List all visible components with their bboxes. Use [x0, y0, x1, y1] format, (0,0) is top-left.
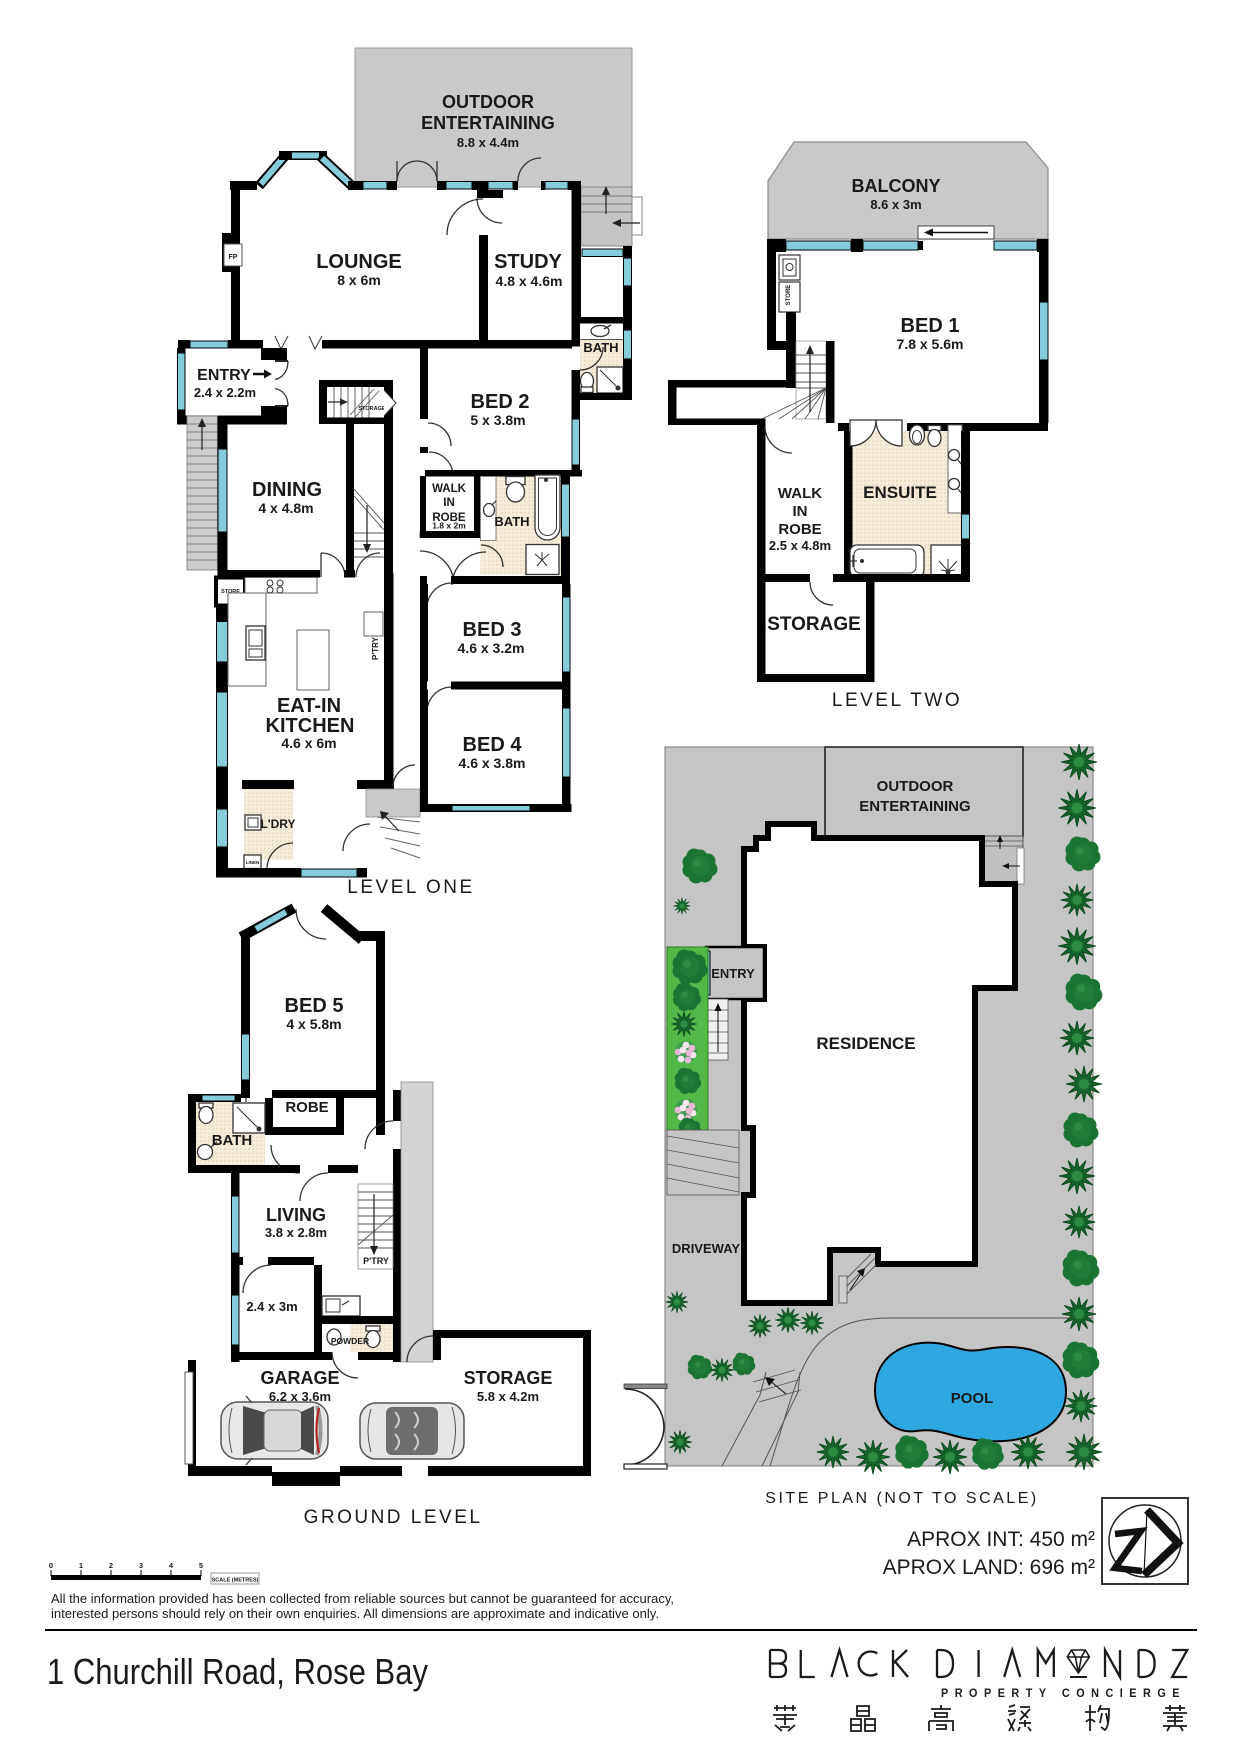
svg-text:OUTDOOR: OUTDOOR	[877, 778, 954, 795]
svg-text:L'DRY: L'DRY	[260, 817, 295, 831]
svg-text:OUTDOOR: OUTDOOR	[442, 92, 534, 112]
svg-text:P'TRY: P'TRY	[363, 1256, 389, 1266]
svg-text:8.8 x 4.4m: 8.8 x 4.4m	[457, 135, 519, 150]
svg-text:STORAGE: STORAGE	[767, 614, 861, 635]
svg-text:ROBE: ROBE	[285, 1099, 328, 1116]
svg-text:1 Churchill Road, Rose Bay: 1 Churchill Road, Rose Bay	[47, 1651, 428, 1692]
svg-text:IN: IN	[793, 503, 808, 520]
svg-text:4.6 x 3.8m: 4.6 x 3.8m	[459, 755, 526, 771]
svg-text:4 x 4.8m: 4 x 4.8m	[258, 500, 313, 516]
svg-text:GARAGE: GARAGE	[260, 1368, 339, 1388]
svg-text:0: 0	[49, 1561, 53, 1570]
svg-text:STORAGE: STORAGE	[464, 1368, 553, 1388]
svg-text:LEVEL TWO: LEVEL TWO	[832, 690, 962, 711]
svg-text:8.6 x 3m: 8.6 x 3m	[870, 197, 921, 212]
svg-text:POWDER: POWDER	[331, 1336, 369, 1346]
svg-text:All the information provided h: All the information provided has been co…	[51, 1591, 674, 1606]
svg-text:7.8 x 5.6m: 7.8 x 5.6m	[897, 336, 964, 352]
svg-text:5.8 x 4.2m: 5.8 x 4.2m	[477, 1389, 539, 1404]
svg-text:BATH: BATH	[212, 1132, 253, 1149]
svg-text:SCALE (METRES): SCALE (METRES)	[212, 1578, 259, 1584]
svg-text:1.8 x 2m: 1.8 x 2m	[432, 521, 466, 531]
svg-text:4 x 5.8m: 4 x 5.8m	[286, 1016, 341, 1032]
svg-text:BED 4: BED 4	[463, 734, 523, 756]
svg-text:APROX INT: 450 m²: APROX INT: 450 m²	[907, 1528, 1095, 1551]
svg-text:LINEN: LINEN	[246, 860, 260, 865]
svg-text:LIVING: LIVING	[266, 1205, 326, 1225]
svg-text:BED 2: BED 2	[471, 391, 530, 413]
svg-text:ENTERTAINING: ENTERTAINING	[421, 113, 555, 133]
svg-text:5: 5	[199, 1561, 203, 1570]
svg-text:APROX LAND: 696 m²: APROX LAND: 696 m²	[883, 1556, 1095, 1579]
svg-text:DINING: DINING	[252, 479, 322, 501]
svg-text:STUDY: STUDY	[494, 251, 562, 273]
svg-text:ROBE: ROBE	[778, 521, 821, 538]
svg-text:POOL: POOL	[951, 1390, 994, 1407]
svg-text:LOUNGE: LOUNGE	[316, 251, 402, 273]
svg-text:ENTERTAINING: ENTERTAINING	[859, 798, 970, 815]
svg-text:4.6 x 3.2m: 4.6 x 3.2m	[458, 640, 525, 656]
svg-text:STORE: STORE	[786, 285, 792, 306]
svg-text:BED 1: BED 1	[901, 315, 960, 337]
svg-text:5 x 3.8m: 5 x 3.8m	[470, 412, 525, 428]
svg-text:ENSUITE: ENSUITE	[863, 483, 937, 502]
svg-text:RESIDENCE: RESIDENCE	[816, 1034, 915, 1053]
svg-text:LEVEL ONE: LEVEL ONE	[347, 877, 474, 898]
svg-text:BATH: BATH	[494, 514, 529, 529]
svg-text:SITE PLAN (NOT TO SCALE): SITE PLAN (NOT TO SCALE)	[765, 1490, 1038, 1507]
svg-text:WALK: WALK	[432, 483, 467, 495]
svg-text:2.5 x 4.8m: 2.5 x 4.8m	[769, 538, 831, 553]
svg-text:FP: FP	[229, 254, 238, 261]
svg-text:WALK: WALK	[778, 485, 822, 502]
svg-text:IN: IN	[443, 497, 455, 509]
svg-text:BALCONY: BALCONY	[852, 176, 941, 196]
svg-text:PROPERTY CONCIERGE: PROPERTY CONCIERGE	[941, 1686, 1186, 1700]
svg-text:4.6 x 6m: 4.6 x 6m	[281, 735, 336, 751]
svg-text:2.4 x 2.2m: 2.4 x 2.2m	[194, 385, 256, 400]
svg-text:GROUND LEVEL: GROUND LEVEL	[304, 1507, 483, 1528]
svg-text:BED 3: BED 3	[463, 619, 522, 641]
svg-text:STORAGE: STORAGE	[358, 406, 385, 412]
svg-text:3.8 x 2.8m: 3.8 x 2.8m	[265, 1225, 327, 1240]
svg-text:3: 3	[139, 1561, 143, 1570]
svg-text:4.8 x 4.6m: 4.8 x 4.6m	[496, 273, 563, 289]
svg-text:P'TRY: P'TRY	[371, 636, 380, 660]
svg-text:1: 1	[79, 1561, 83, 1570]
svg-text:BATH: BATH	[583, 340, 618, 355]
svg-text:2: 2	[109, 1561, 113, 1570]
svg-text:BED 5: BED 5	[285, 995, 344, 1017]
svg-text:KITCHEN: KITCHEN	[266, 715, 355, 737]
svg-text:EAT-IN: EAT-IN	[277, 695, 341, 717]
svg-text:DRIVEWAY: DRIVEWAY	[672, 1241, 740, 1256]
svg-text:ENTRY: ENTRY	[711, 966, 755, 981]
svg-text:interested persons should rely: interested persons should rely on their …	[51, 1606, 659, 1621]
svg-text:8 x 6m: 8 x 6m	[337, 272, 381, 288]
svg-text:2.4 x 3m: 2.4 x 3m	[246, 1299, 297, 1314]
svg-text:ENTRY: ENTRY	[197, 367, 251, 384]
